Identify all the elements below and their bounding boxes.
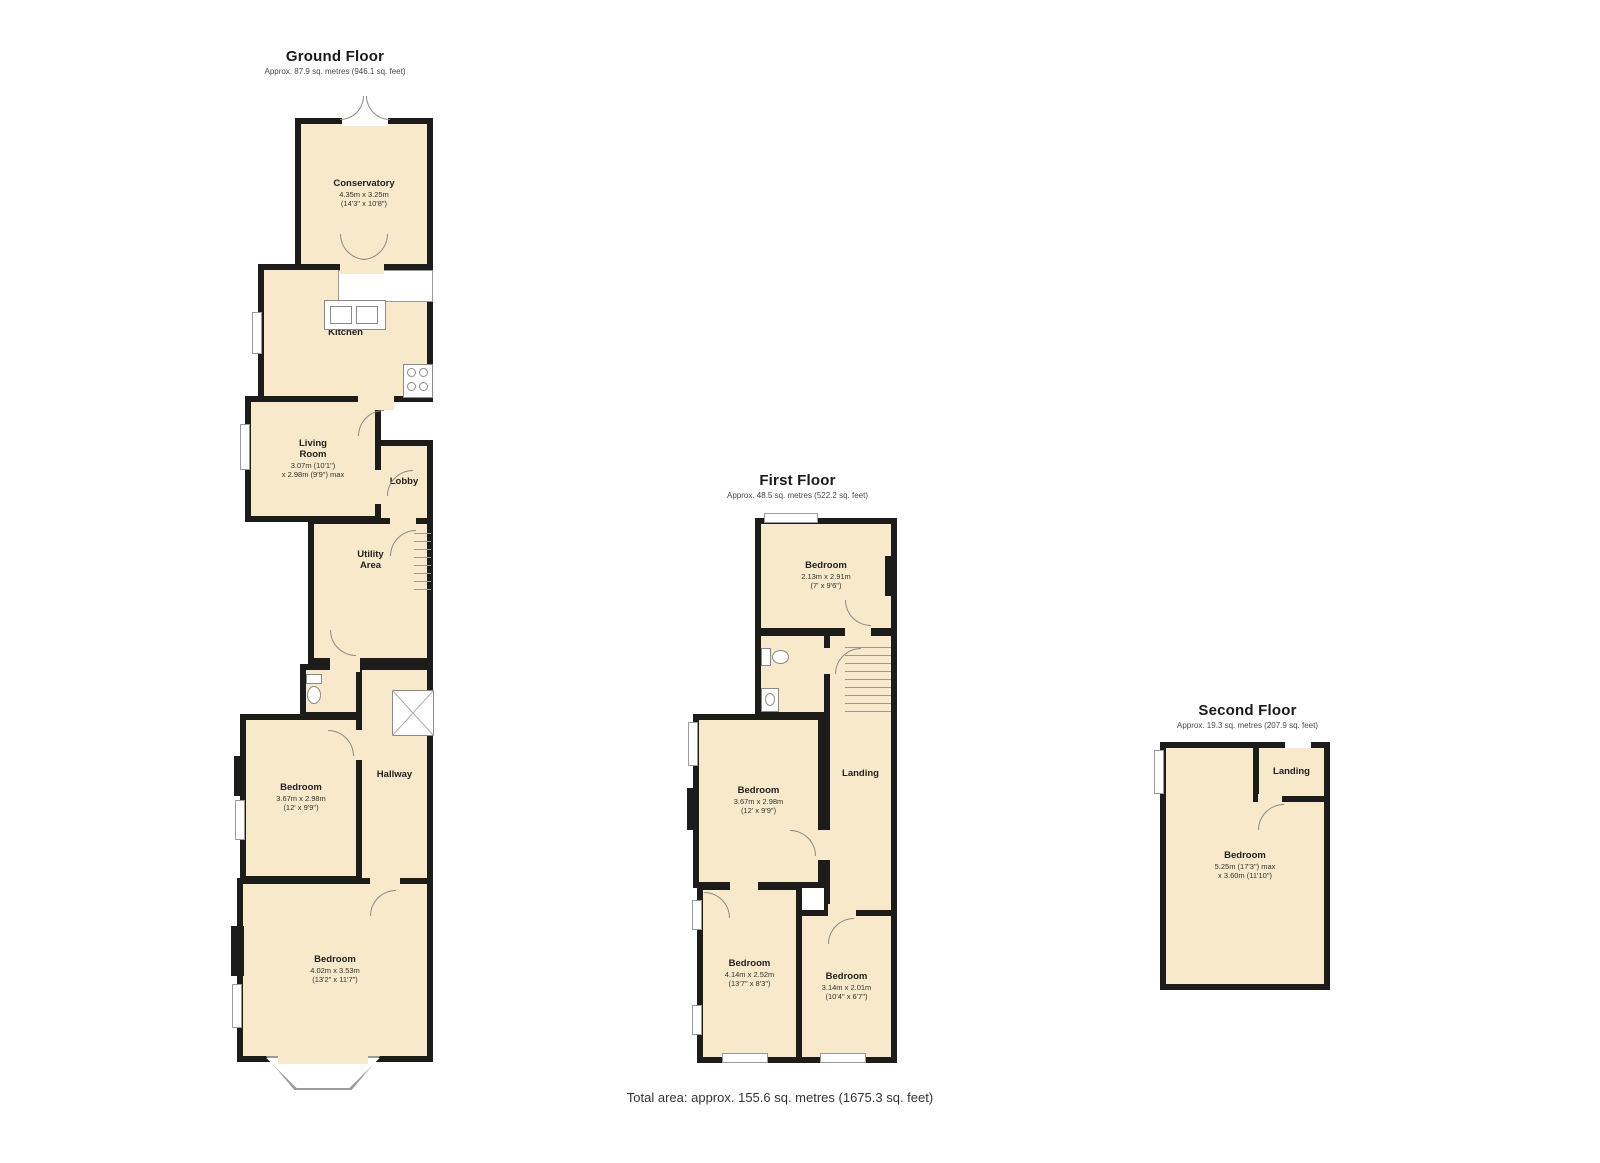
- window: [692, 1005, 702, 1035]
- wall-pier: [687, 788, 699, 830]
- first-floor-title: First Floor: [695, 472, 900, 489]
- window: [232, 984, 242, 1028]
- room-dims-ft: (13'2" x 11'7"): [312, 975, 358, 984]
- room-dims-ft: (13'7" x 8'3"): [729, 979, 771, 988]
- room-dims-ft: (10'4" x 6'7"): [826, 992, 868, 1001]
- toilet-bowl-icon: [307, 686, 321, 704]
- door-gap: [373, 470, 387, 504]
- wall-pier: [885, 556, 897, 596]
- toilet-cistern-icon: [306, 674, 322, 684]
- room-dims-m: 4.35m x 3.25m: [339, 190, 389, 199]
- window: [820, 1053, 866, 1063]
- room-label: Conservatory: [333, 179, 394, 190]
- room-label: Utility Area: [349, 550, 393, 572]
- kitchen-recess: [338, 270, 433, 302]
- room-landing-second: Landing: [1253, 742, 1330, 802]
- room-dims-m: 5.25m (17'3") max: [1215, 862, 1276, 871]
- window: [688, 722, 698, 766]
- sink-bowl-icon: [356, 306, 378, 324]
- ground-floor-title-block: Ground Floor Approx. 87.9 sq. metres (94…: [230, 48, 440, 76]
- shower-lines-icon: [392, 690, 434, 736]
- wall-pier: [234, 756, 246, 796]
- window: [1154, 750, 1164, 794]
- door-gap: [340, 258, 384, 274]
- window: [252, 312, 262, 354]
- room-bedroom-first-rear: Bedroom 2.13m x 2.91m (7' x 9'6"): [755, 518, 897, 634]
- ground-floor-title: Ground Floor: [230, 48, 440, 65]
- room-dims-m: 3.67m x 2.98m: [734, 797, 784, 806]
- burner-icon: [419, 382, 428, 391]
- door-gap: [1258, 794, 1282, 804]
- door-gap: [845, 626, 871, 640]
- room-dims-m: 3.14m x 2.01m: [822, 983, 872, 992]
- room-label: Bedroom: [738, 786, 780, 797]
- basin-bowl-icon: [765, 693, 775, 706]
- window: [235, 800, 245, 840]
- room-dims-ft: (14'3" x 10'8"): [341, 199, 387, 208]
- toilet-cistern-icon: [761, 648, 771, 666]
- floorplan-page: Ground Floor Approx. 87.9 sq. metres (94…: [0, 0, 1600, 1163]
- room-label: Bedroom: [729, 959, 771, 970]
- door-gap: [330, 656, 360, 672]
- window: [764, 513, 818, 523]
- room-dims-m: 4.02m x 3.53m: [310, 966, 360, 975]
- stairs: [414, 526, 431, 592]
- room-dims-m: 3.67m x 2.98m: [276, 794, 326, 803]
- window: [240, 424, 250, 470]
- room-dims-ft: x 3.60m (11'10"): [1218, 871, 1272, 880]
- window: [722, 1053, 768, 1063]
- room-dims-m: 3.07m (10'1"): [291, 461, 336, 470]
- room-dims-ft: (12' x 9'9"): [283, 803, 318, 812]
- room-label: Bedroom: [280, 783, 322, 794]
- door-gap: [816, 830, 830, 860]
- burner-icon: [419, 368, 428, 377]
- room-label: Bedroom: [805, 561, 847, 572]
- sink-bowl-icon: [330, 306, 352, 324]
- stair-opening: [1285, 738, 1311, 748]
- door-gap: [358, 394, 394, 410]
- room-dims-ft: (7' x 9'6"): [811, 581, 842, 590]
- first-floor-area: Approx. 48.5 sq. metres (522.2 sq. feet): [695, 491, 900, 500]
- room-label: Bedroom: [1224, 851, 1266, 862]
- door-gap: [354, 730, 368, 760]
- second-floor-title-block: Second Floor Approx. 19.3 sq. metres (20…: [1145, 702, 1350, 730]
- second-floor-area: Approx. 19.3 sq. metres (207.9 sq. feet): [1145, 721, 1350, 730]
- wall-pier: [231, 926, 244, 976]
- burner-icon: [407, 368, 416, 377]
- room-label: Landing: [842, 769, 879, 780]
- room-living: Living Room 3.07m (10'1") x 2.98m (9'9")…: [245, 396, 381, 522]
- door-gap: [828, 904, 856, 918]
- room-dims-ft: x 2.98m (9'9") max: [282, 470, 344, 479]
- bay-opening: [278, 1052, 368, 1064]
- room-bedroom-first-middle: Bedroom 3.67m x 2.98m (12' x 9'9"): [693, 714, 824, 888]
- room-label: Hallway: [377, 770, 412, 781]
- window: [692, 900, 702, 930]
- toilet-bowl-icon: [772, 650, 789, 664]
- room-label: Landing: [1273, 767, 1310, 778]
- room-dims-ft: (12' x 9'9"): [741, 806, 776, 815]
- room-label: Bedroom: [314, 955, 356, 966]
- second-floor-title: Second Floor: [1145, 702, 1350, 719]
- door-gap: [366, 676, 378, 700]
- total-area-text: Total area: approx. 155.6 sq. metres (16…: [530, 1090, 1030, 1105]
- door-gap: [821, 648, 835, 674]
- burner-icon: [407, 382, 416, 391]
- room-label: Living Room: [291, 439, 335, 461]
- ground-floor-area: Approx. 87.9 sq. metres (946.1 sq. feet): [230, 67, 440, 76]
- room-label: Bedroom: [826, 972, 868, 983]
- room-dims-m: 2.13m x 2.91m: [801, 572, 851, 581]
- door-gap: [390, 516, 416, 530]
- room-dims-m: 4.14m x 2.52m: [725, 970, 775, 979]
- first-floor-title-block: First Floor Approx. 48.5 sq. metres (522…: [695, 472, 900, 500]
- door-gap: [370, 876, 400, 890]
- room-bedroom-ground-2: Bedroom 4.02m x 3.53m (13'2" x 11'7"): [237, 878, 433, 1062]
- door-gap: [730, 878, 758, 892]
